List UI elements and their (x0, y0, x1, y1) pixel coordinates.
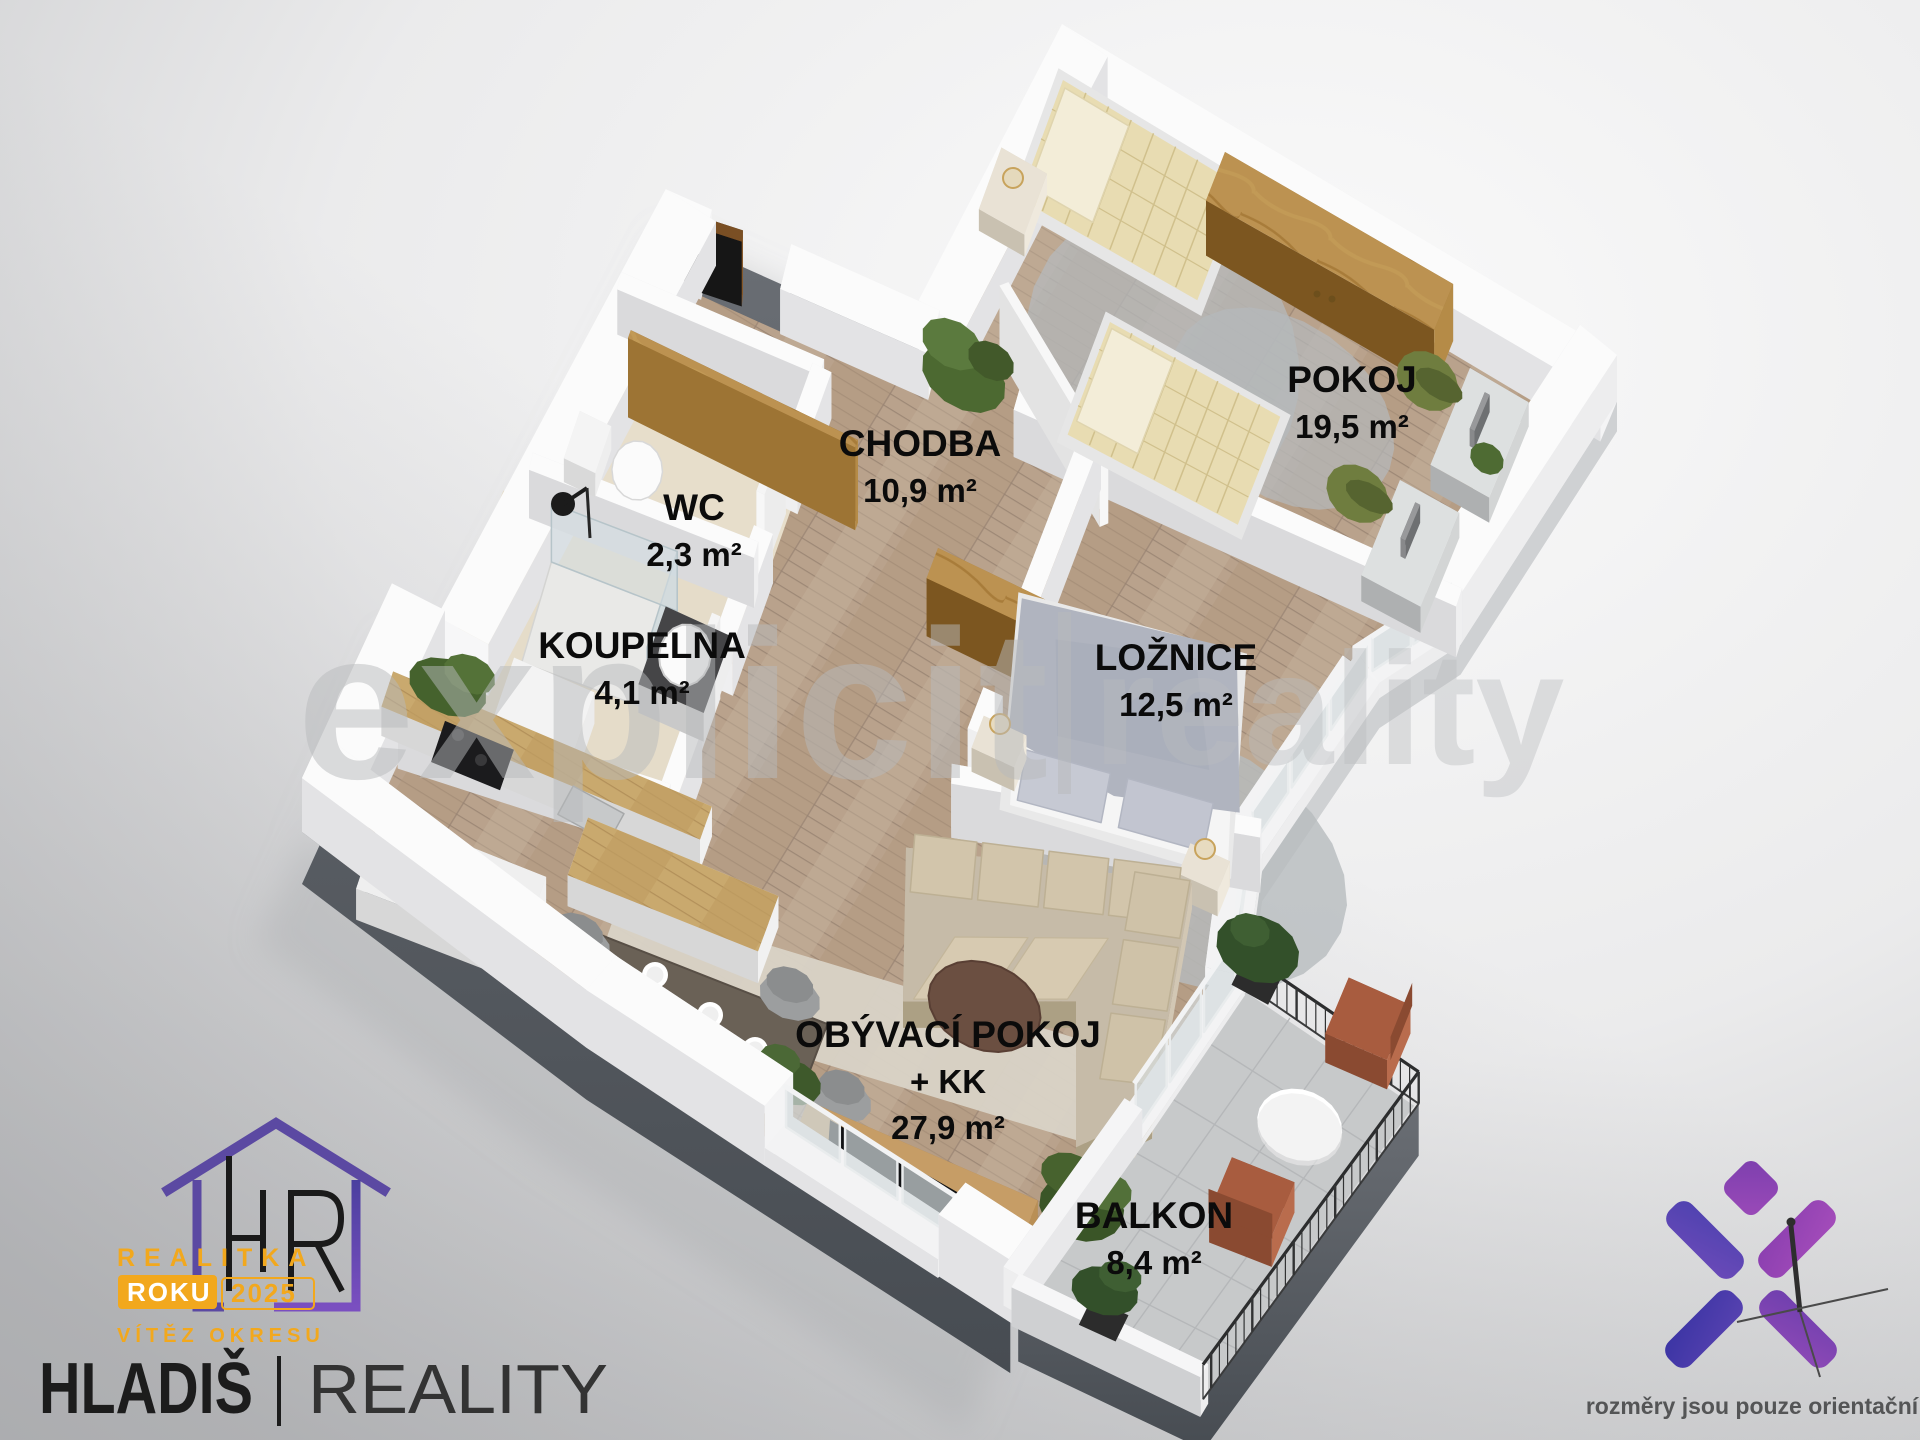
svg-text:REALITKA: REALITKA (117, 1244, 315, 1272)
svg-text:12,5 m²: 12,5 m² (1119, 686, 1233, 723)
svg-text:27,9 m²: 27,9 m² (891, 1109, 1005, 1146)
svg-text:+ KK: + KK (910, 1063, 986, 1100)
svg-text:ROKU: ROKU (127, 1277, 212, 1307)
svg-text:WC: WC (663, 487, 725, 528)
svg-text:LOŽNICE: LOŽNICE (1095, 636, 1257, 678)
svg-text:2,3 m²: 2,3 m² (646, 536, 741, 573)
svg-text:VÍTĚZ OKRESU: VÍTĚZ OKRESU (117, 1323, 325, 1347)
svg-text:19,5 m²: 19,5 m² (1295, 408, 1409, 445)
svg-text:10,9 m²: 10,9 m² (863, 472, 977, 509)
svg-text:BALKON: BALKON (1075, 1195, 1233, 1236)
svg-text:OBÝVACÍ POKOJ: OBÝVACÍ POKOJ (795, 1014, 1101, 1055)
svg-text:2025: 2025 (231, 1278, 297, 1308)
svg-text:8,4 m²: 8,4 m² (1106, 1244, 1201, 1281)
svg-text:CHODBA: CHODBA (839, 423, 1001, 464)
svg-text:KOUPELNA: KOUPELNA (538, 625, 746, 666)
svg-text:rozměry jsou pouze orientační: rozměry jsou pouze orientační (1586, 1393, 1920, 1419)
svg-text:REALITY: REALITY (308, 1350, 608, 1428)
svg-text:POKOJ: POKOJ (1287, 359, 1417, 400)
svg-text:HLADIŠ: HLADIŠ (39, 1348, 253, 1429)
svg-text:4,1 m²: 4,1 m² (594, 674, 689, 711)
